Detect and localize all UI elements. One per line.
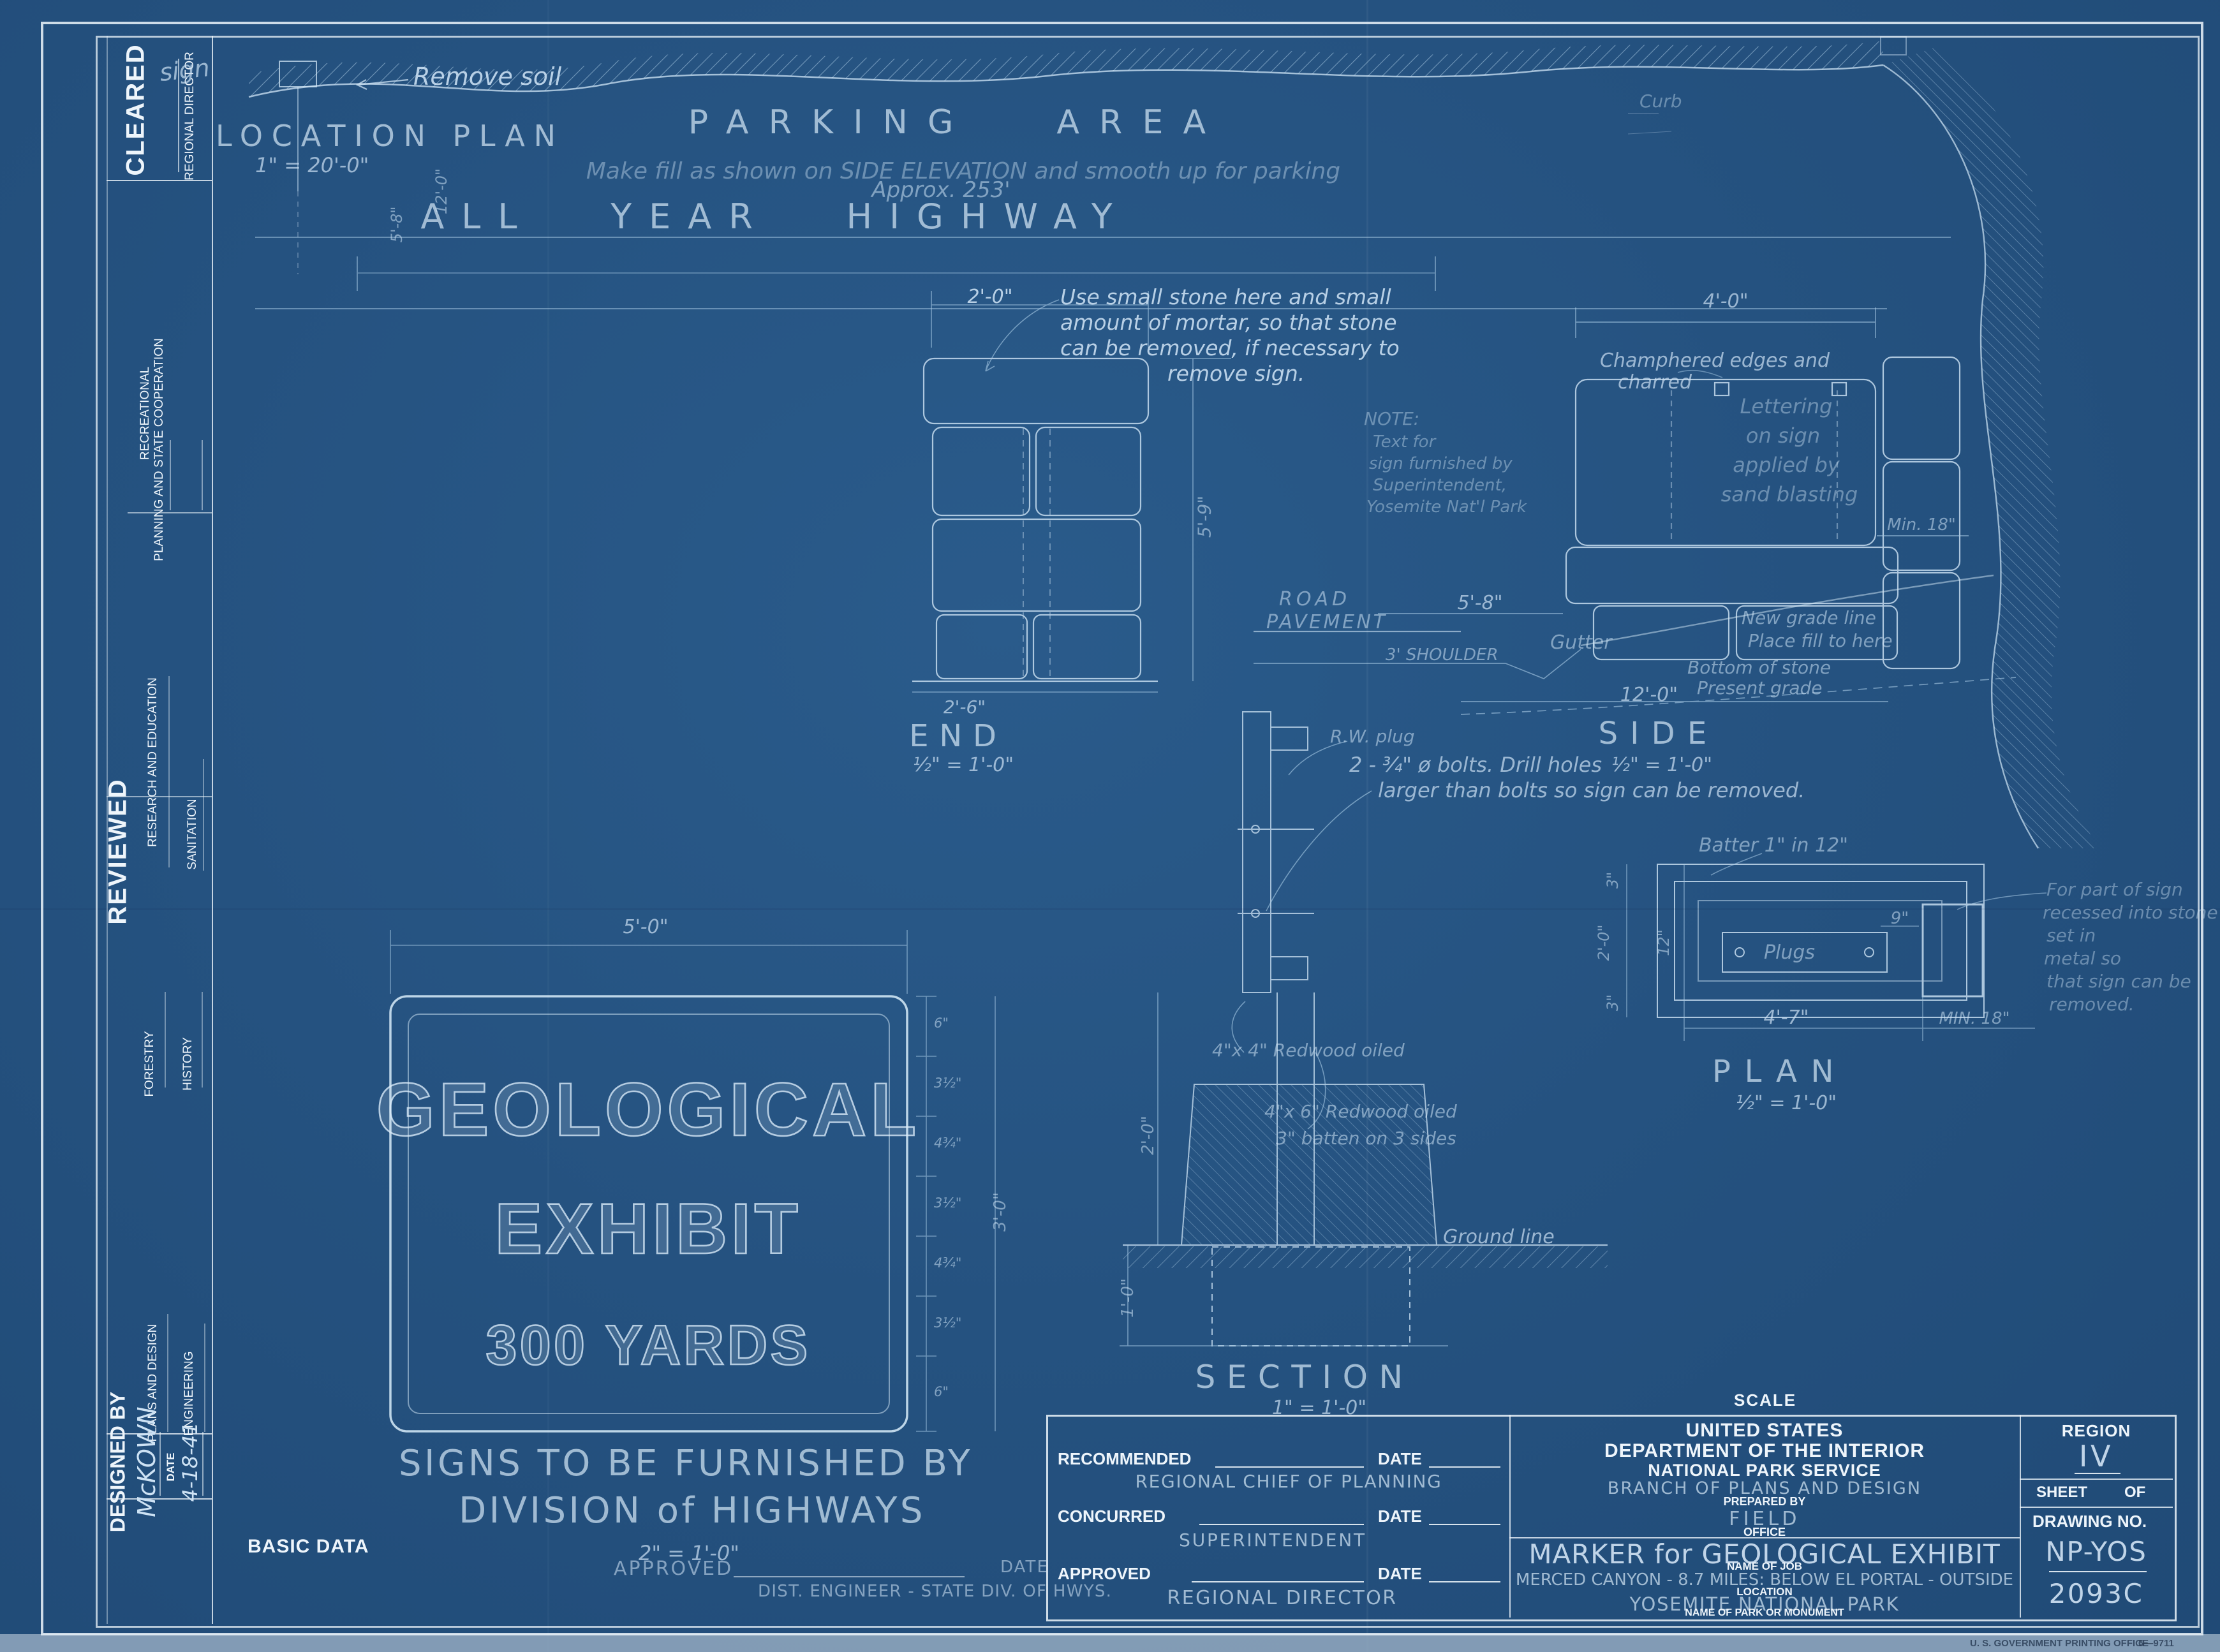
sidebar-line-plans [167, 1314, 168, 1432]
lettering-note-line4: sand blasting [1721, 482, 1858, 506]
gutter-label: Gutter [1550, 631, 1612, 654]
recess-note-line3: set in [2046, 925, 2096, 946]
plan-dim-9: 9" [1891, 909, 1909, 928]
stone-note-line2: amount of mortar, so that stone [1060, 310, 1397, 335]
lettering-note-line2: on sign [1746, 424, 1820, 448]
plan-dim-center: 2'-0" [1595, 925, 1613, 961]
designed-by-line [159, 1432, 161, 1496]
title-nps: NATIONAL PARK SERVICE [1648, 1461, 1881, 1480]
hwy-approved-label: APPROVED [614, 1558, 733, 1580]
park-label: NAME OF PARK OR MONUMENT [1685, 1607, 1844, 1619]
redwood-note-a: 4"x 4" Redwood oiled [1212, 1040, 1405, 1061]
plan-dim-3a: 3" [1604, 872, 1622, 889]
chamfer-note-line2: charred [1618, 371, 1692, 394]
bottom-of-stone-note: Bottom of stone [1687, 657, 1831, 678]
signs-furnished-line2: DIVISION of HIGHWAYS [459, 1490, 926, 1531]
plan-dim-12: 12" [1655, 929, 1673, 956]
reviewed-heading: REVIEWED [104, 778, 133, 924]
approved-label: APPROVED [1058, 1564, 1151, 1584]
recommended-label: RECOMMENDED [1058, 1449, 1191, 1469]
section-dim-footing: 1'-0" [1118, 1278, 1137, 1318]
approved-date-label: DATE [1378, 1564, 1422, 1584]
side-dim-shoulder-span: 5'-8" [1457, 592, 1502, 614]
lettering-note-line1: Lettering [1740, 394, 1833, 418]
concurred-signatory: SUPERINTENDENT [1179, 1530, 1366, 1551]
designed-by-heading: DESIGNED BY [107, 1392, 130, 1532]
blueprint-sheet: CLEARED REGIONAL DIRECTOR RECREATIONAL P… [0, 0, 2220, 1652]
region-divider-1 [2020, 1479, 2173, 1480]
location-dim-offset: 5'-8" [388, 207, 406, 243]
section-view-title: SECTION [1195, 1359, 1414, 1396]
batter-note: Batter 1" in 12" [1699, 834, 1848, 857]
stone-note-line1: Use small stone here and small [1060, 284, 1391, 309]
sign-dim-height: 3'-0" [991, 1192, 1010, 1232]
sign-row-dim-4: 3½" [934, 1195, 961, 1211]
sidebar-row-recreational: RECREATIONAL [138, 367, 152, 460]
title-department: DEPARTMENT OF THE INTERIOR [1604, 1440, 1925, 1462]
printing-office-label: U. S. GOVERNMENT PRINTING OFFICE [1970, 1638, 2149, 1649]
side-dim-top: 4'-0" [1703, 290, 1748, 313]
location-plan-title: LOCATION PLAN [216, 119, 565, 153]
sheet-label: SHEET [2036, 1484, 2087, 1501]
region-label: REGION [2062, 1421, 2131, 1441]
cleared-heading: CLEARED [122, 43, 151, 175]
printing-office-code: 6—9711 [2138, 1638, 2174, 1649]
curb-note: Curb [1639, 91, 1682, 112]
new-grade-note: New grade line [1742, 607, 1876, 628]
sign-line-exhibit: EXHIBIT [494, 1188, 801, 1270]
side-view-title: SIDE [1599, 716, 1719, 751]
plan-view-scale: ½" = 1'-0" [1736, 1092, 1837, 1114]
side-dim-span: 12'-0" [1620, 684, 1678, 706]
road-label-line1: ROAD [1279, 588, 1350, 610]
recommended-signatory: REGIONAL CHIEF OF PLANNING [1135, 1471, 1442, 1492]
road-label-line2: PAVEMENT [1266, 611, 1388, 633]
designed-date-label: DATE [165, 1452, 177, 1481]
basic-data-label: BASIC DATA [248, 1536, 369, 1558]
stone-note-line4: remove sign. [1167, 361, 1305, 386]
signs-furnished-line1: SIGNS TO BE FURNISHED BY [399, 1443, 973, 1484]
side-dim-min: Min. 18" [1887, 515, 1956, 535]
batten-note: 3" batten on 3 sides [1276, 1128, 1456, 1149]
sign-row-dim-5: 4¾" [934, 1255, 961, 1271]
recess-note-line1: For part of sign [2046, 879, 2183, 900]
sign-dim-width: 5'-0" [623, 916, 668, 938]
end-dim-top: 2'-0" [967, 286, 1012, 308]
scan-edge-strip [0, 1634, 2220, 1652]
sign-row-dim-6: 3½" [934, 1315, 961, 1331]
side-view-scale: ½" = 1'-0" [1611, 754, 1712, 776]
sidebar-line-sanitation [203, 759, 204, 871]
designed-date-value: 4-18-41 [178, 1422, 202, 1502]
designed-date-line [202, 1432, 204, 1496]
block-divider-2 [2020, 1415, 2021, 1618]
drawing-no-line1: NP-YOS [2045, 1536, 2147, 1567]
designed-by-name: McKOWN [133, 1406, 161, 1517]
end-view-title: END [909, 718, 1007, 754]
sidebar-row-planning: PLANNING AND STATE COOPERATION [152, 338, 166, 561]
office-label: OFFICE [1743, 1526, 1786, 1539]
location-plan-scale: 1" = 20'-0" [255, 153, 369, 177]
plugs-label: Plugs [1764, 941, 1815, 964]
shoulder-dim: 3' SHOULDER [1386, 645, 1499, 665]
chamfer-note-line1: Champhered edges and [1600, 350, 1830, 372]
present-grade-note: Present grade [1697, 677, 1823, 698]
end-dim-height: 5'-9" [1194, 496, 1215, 538]
remove-soil-note: Remove soil [413, 63, 561, 91]
approved-signatory: REGIONAL DIRECTOR [1167, 1587, 1397, 1609]
prepared-by-label: PREPARED BY [1724, 1495, 1806, 1508]
bolts-note-line1: 2 - ¾" ø bolts. Drill holes [1349, 753, 1602, 777]
sidebar-right-rule [212, 36, 213, 1624]
drawing-no-line2: 2093C [2049, 1578, 2144, 1609]
block-divider-1 [1509, 1415, 1511, 1618]
general-note-line2: Text for [1373, 432, 1435, 452]
sidebar-row-history: HISTORY [181, 1037, 195, 1091]
region-divider-2 [2020, 1507, 2173, 1508]
sidebar-rule-2 [128, 512, 212, 513]
sidebar-line-engineering [204, 1324, 205, 1432]
parking-area-label: PARKING AREA [688, 103, 1226, 142]
sidebar-bracket-1 [170, 440, 171, 510]
title-united-states: UNITED STATES [1686, 1420, 1844, 1442]
drawing-border [96, 36, 2200, 1628]
sign-row-dim-3: 4¾" [934, 1135, 961, 1151]
redwood-note-b: 4"x 6" Redwood oiled [1264, 1101, 1457, 1122]
concurred-label: CONCURRED [1058, 1507, 1165, 1526]
plan-dim-width: 4'-7" [1763, 1007, 1809, 1029]
sidebar-row-forestry: FORESTRY [143, 1031, 157, 1096]
all-year-highway-label: ALL YEAR HIGHWAY [420, 196, 1129, 237]
region-value: IV [2079, 1439, 2113, 1473]
place-fill-note: Place fill to here [1748, 630, 1893, 651]
recommended-date-label: DATE [1378, 1449, 1422, 1469]
general-note-line1: NOTE: [1364, 408, 1419, 429]
plug-note: R.W. plug [1330, 726, 1415, 747]
recess-note-line4: metal so [2044, 948, 2121, 969]
hwy-date-label: DATE [1000, 1558, 1049, 1577]
plan-view-title: PLAN [1712, 1054, 1847, 1089]
general-note-line5: Yosemite Nat'l Park [1366, 498, 1527, 517]
end-dim-bottom: 2'-6" [944, 697, 986, 718]
concurred-date-label: DATE [1378, 1507, 1422, 1526]
sign-row-dim-2: 3½" [934, 1075, 961, 1091]
sign-callout: sign [158, 54, 211, 87]
scale-label: SCALE [1734, 1390, 1796, 1410]
sign-line-300-yards: 300 YARDS [485, 1313, 810, 1378]
sign-row-dim-1: 6" [934, 1015, 949, 1031]
sidebar-line-history [202, 992, 203, 1088]
section-dim-depth: 2'-0" [1139, 1116, 1158, 1155]
stone-note-line3: can be removed, if necessary to [1060, 336, 1400, 360]
recess-note-line5: that sign can be [2046, 971, 2191, 992]
sidebar-line-research [168, 676, 170, 867]
lettering-note-line3: applied by [1733, 453, 1839, 477]
sidebar-row-research: RESEARCH AND EDUCATION [146, 677, 160, 847]
recess-note-line2: recessed into stone [2043, 902, 2218, 923]
sign-line-geological: GEOLOGICAL [376, 1066, 920, 1153]
sidebar-line-forestry [165, 992, 166, 1088]
plan-dim-3b: 3" [1604, 994, 1622, 1011]
location-dim-setback: 12'-0" [433, 168, 450, 214]
sidebar-row-sanitation: SANITATION [186, 799, 200, 869]
bolts-note-line2: larger than bolts so sign can be removed… [1378, 778, 1805, 802]
general-note-line4: Superintendent, [1373, 476, 1507, 495]
recess-note-line6: removed. [2049, 994, 2135, 1015]
general-note-line3: sign furnished by [1369, 454, 1513, 473]
end-view-scale: ½" = 1'-0" [913, 754, 1014, 776]
sidebar-bracket-2 [202, 440, 203, 510]
ground-line-label: Ground line [1443, 1226, 1555, 1248]
drawing-no-label: DRAWING NO. [2032, 1512, 2147, 1531]
sign-row-dim-7: 6" [934, 1384, 949, 1399]
plan-dim-min: MIN. 18" [1939, 1009, 2009, 1028]
sheet-of-label: OF [2124, 1484, 2145, 1501]
